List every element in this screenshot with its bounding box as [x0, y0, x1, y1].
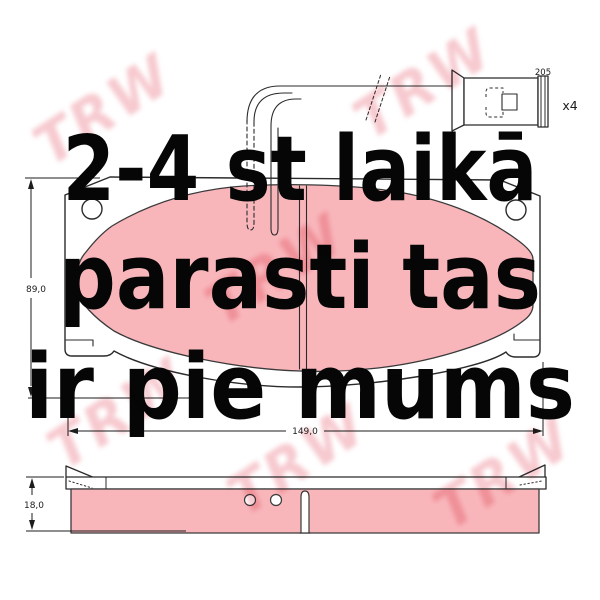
- overlay-line-2: parasti tas: [59, 225, 541, 330]
- product-image: 205 x4: [0, 0, 600, 600]
- side-sensor-hole-left: [245, 495, 256, 506]
- overlay-line-1: 2-4 st laikā: [63, 117, 538, 222]
- side-wing-right: [517, 465, 545, 478]
- availability-overlay-text: 2-4 st laikā parasti tas ir pie mums: [25, 117, 575, 440]
- wire-length-label: 205: [535, 68, 551, 78]
- sensor-quantity-label: x4: [562, 98, 577, 113]
- wire-break-marks: [366, 74, 390, 122]
- connector-tip: [538, 76, 548, 127]
- side-center-slot: [301, 491, 309, 533]
- dim-pad-height-label: 89,0: [26, 285, 46, 295]
- pad-side-view: [66, 465, 546, 533]
- brake-pad-technical-drawing: 205 x4: [0, 0, 600, 600]
- dim-pad-thickness-label: 18,0: [24, 501, 44, 511]
- side-sensor-hole-right: [271, 495, 282, 506]
- overlay-line-3: ir pie mums: [25, 335, 575, 440]
- connector-contact: [502, 94, 517, 110]
- side-backing-plate: [66, 477, 546, 489]
- side-wing-left: [66, 466, 95, 478]
